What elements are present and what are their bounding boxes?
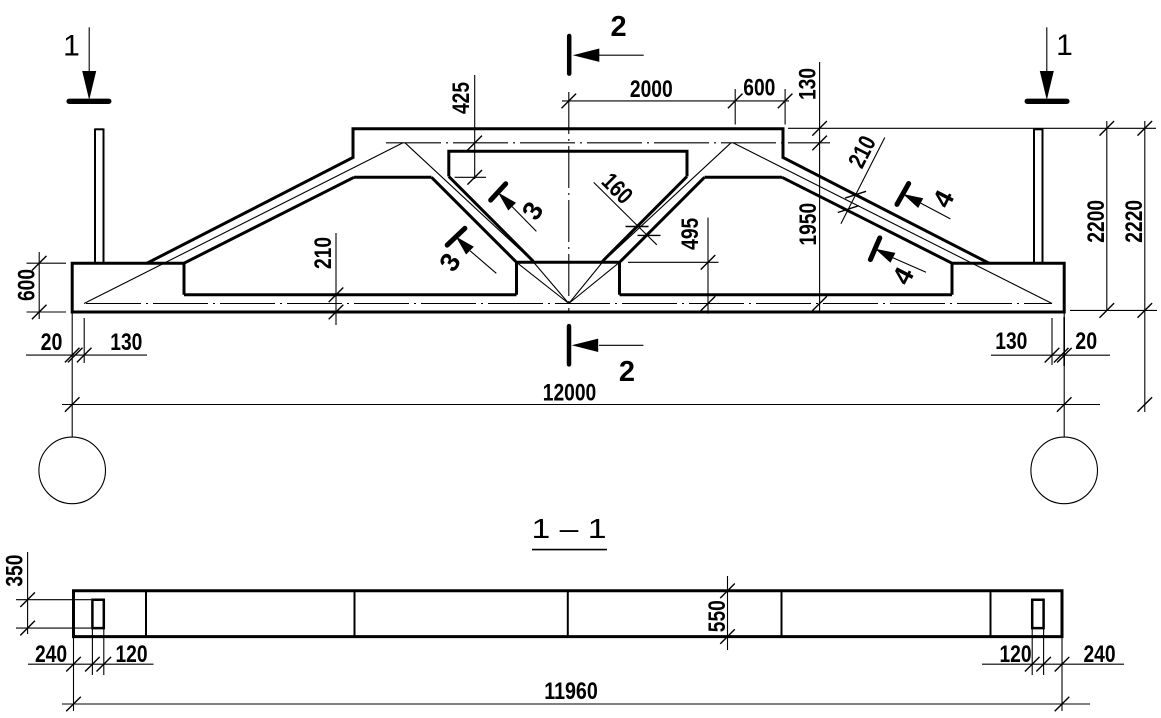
- svg-text:120: 120: [999, 641, 1031, 668]
- svg-text:1950: 1950: [795, 203, 822, 246]
- svg-text:11960: 11960: [544, 678, 598, 705]
- svg-text:120: 120: [115, 641, 147, 668]
- svg-text:350: 350: [2, 555, 29, 587]
- svg-text:1 – 1: 1 – 1: [532, 513, 607, 544]
- svg-text:2: 2: [611, 11, 627, 43]
- svg-text:20: 20: [41, 329, 63, 356]
- svg-text:600: 600: [14, 269, 41, 301]
- svg-text:600: 600: [743, 75, 775, 102]
- svg-text:2000: 2000: [630, 76, 673, 103]
- svg-text:240: 240: [35, 641, 67, 668]
- svg-text:2200: 2200: [1083, 200, 1110, 243]
- svg-text:130: 130: [110, 329, 142, 356]
- svg-text:550: 550: [704, 600, 731, 632]
- svg-text:240: 240: [1083, 641, 1115, 668]
- svg-text:425: 425: [448, 82, 475, 114]
- svg-text:2220: 2220: [1121, 200, 1148, 243]
- svg-text:130: 130: [995, 328, 1027, 355]
- svg-text:20: 20: [1075, 328, 1097, 355]
- svg-text:1: 1: [1056, 29, 1073, 62]
- svg-text:12000: 12000: [543, 379, 597, 406]
- svg-text:2: 2: [619, 356, 635, 388]
- svg-text:210: 210: [310, 237, 337, 269]
- svg-text:1: 1: [63, 30, 80, 63]
- svg-text:130: 130: [794, 68, 821, 100]
- svg-text:495: 495: [677, 218, 704, 250]
